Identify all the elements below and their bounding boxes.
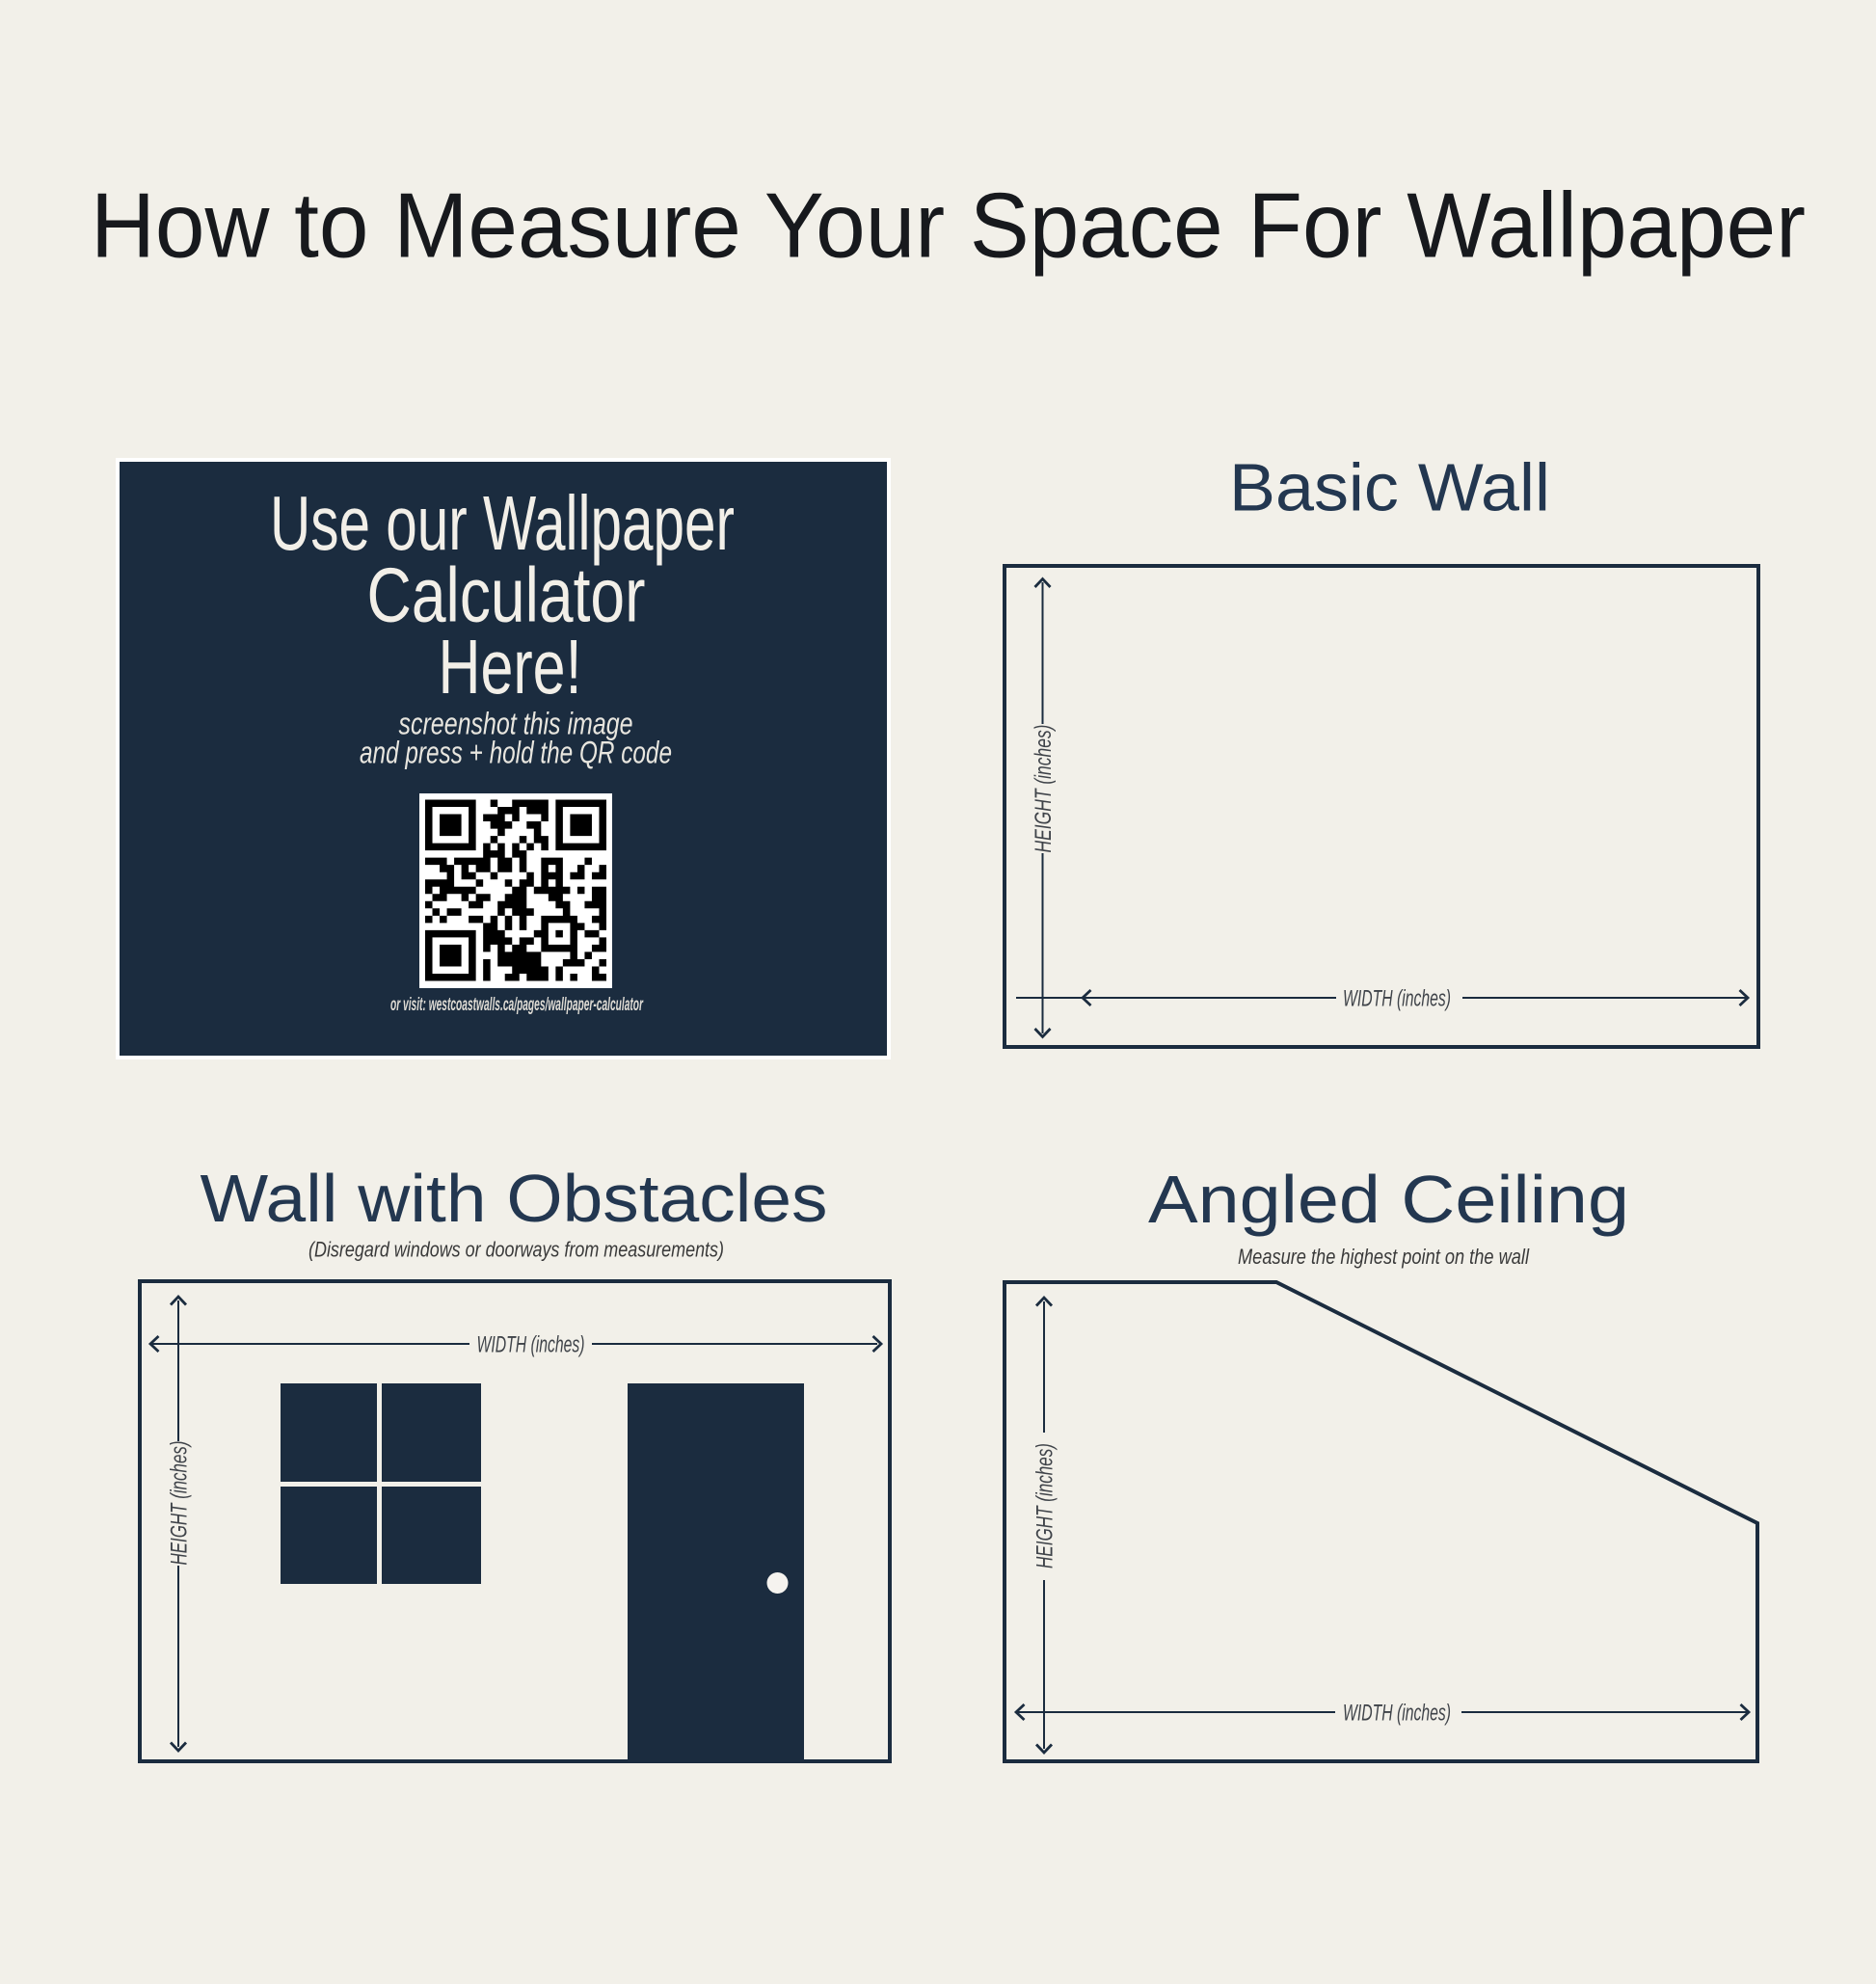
svg-text:HEIGHT (inches): HEIGHT (inches) — [1031, 725, 1057, 853]
svg-text:Measure the highest point on t: Measure the highest point on the wall — [1238, 1245, 1530, 1269]
svg-text:Angled Ceiling: Angled Ceiling — [1148, 1162, 1629, 1237]
svg-text:How to Measure Your Space For: How to Measure Your Space For Wallpaper — [91, 174, 1806, 278]
svg-text:WIDTH (inches): WIDTH (inches) — [477, 1332, 585, 1358]
svg-text:Wall with Obstacles: Wall with Obstacles — [201, 1161, 828, 1236]
svg-text:and press + hold the QR code: and press + hold the QR code — [360, 736, 672, 770]
svg-text:HEIGHT (inches): HEIGHT (inches) — [1032, 1443, 1059, 1568]
svg-text:or visit: westcoastwalls.ca/pa: or visit: westcoastwalls.ca/pages/wallpa… — [390, 995, 644, 1015]
svg-text:(Disregard windows or doorways: (Disregard windows or doorways from meas… — [308, 1238, 724, 1262]
svg-text:Here!: Here! — [439, 624, 582, 710]
svg-text:Basic Wall: Basic Wall — [1229, 450, 1550, 525]
svg-text:WIDTH (inches): WIDTH (inches) — [1343, 986, 1451, 1012]
svg-text:WIDTH (inches): WIDTH (inches) — [1343, 1701, 1451, 1727]
svg-text:HEIGHT (inches): HEIGHT (inches) — [167, 1441, 193, 1566]
